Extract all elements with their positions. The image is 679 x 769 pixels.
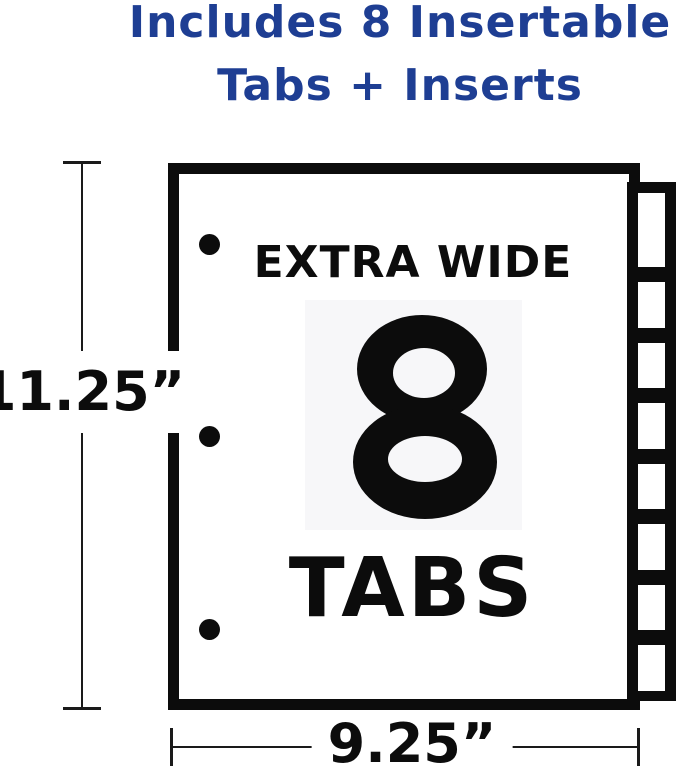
tab-8: [638, 645, 665, 691]
width-dimension-left-tick: [170, 728, 173, 766]
tab-3: [638, 343, 665, 389]
hole-punch-2: [199, 426, 220, 447]
extra-wide-label: EXTRA WIDE: [197, 237, 629, 288]
width-dimension-label: 9.25”: [312, 717, 513, 769]
tab-1: [638, 193, 665, 267]
product-illustration: Includes 8 Insertable Tabs + Inserts EXT…: [0, 0, 679, 769]
tab-7: [638, 585, 665, 631]
tab-5: [638, 464, 665, 510]
tabs-label: TABS: [195, 548, 629, 630]
headline-line1: Includes 8 Insertable: [110, 0, 679, 54]
number-panel: [305, 300, 522, 530]
width-dimension-right-tick: [637, 728, 640, 766]
height-dimension-top-tick: [63, 161, 101, 164]
headline-line2: Tabs + Inserts: [110, 54, 679, 117]
digit-8: [352, 313, 498, 519]
divider-sheet: EXTRA WIDE TABS: [168, 163, 640, 710]
tab-2: [638, 282, 665, 328]
tab-4: [638, 403, 665, 449]
height-dimension-label: 11.25”: [0, 351, 185, 433]
height-dimension-bottom-tick: [63, 707, 101, 710]
tab-6: [638, 524, 665, 570]
headline: Includes 8 Insertable Tabs + Inserts: [110, 0, 679, 117]
tab-strip: [627, 182, 676, 701]
height-dimension-line: [81, 163, 83, 709]
